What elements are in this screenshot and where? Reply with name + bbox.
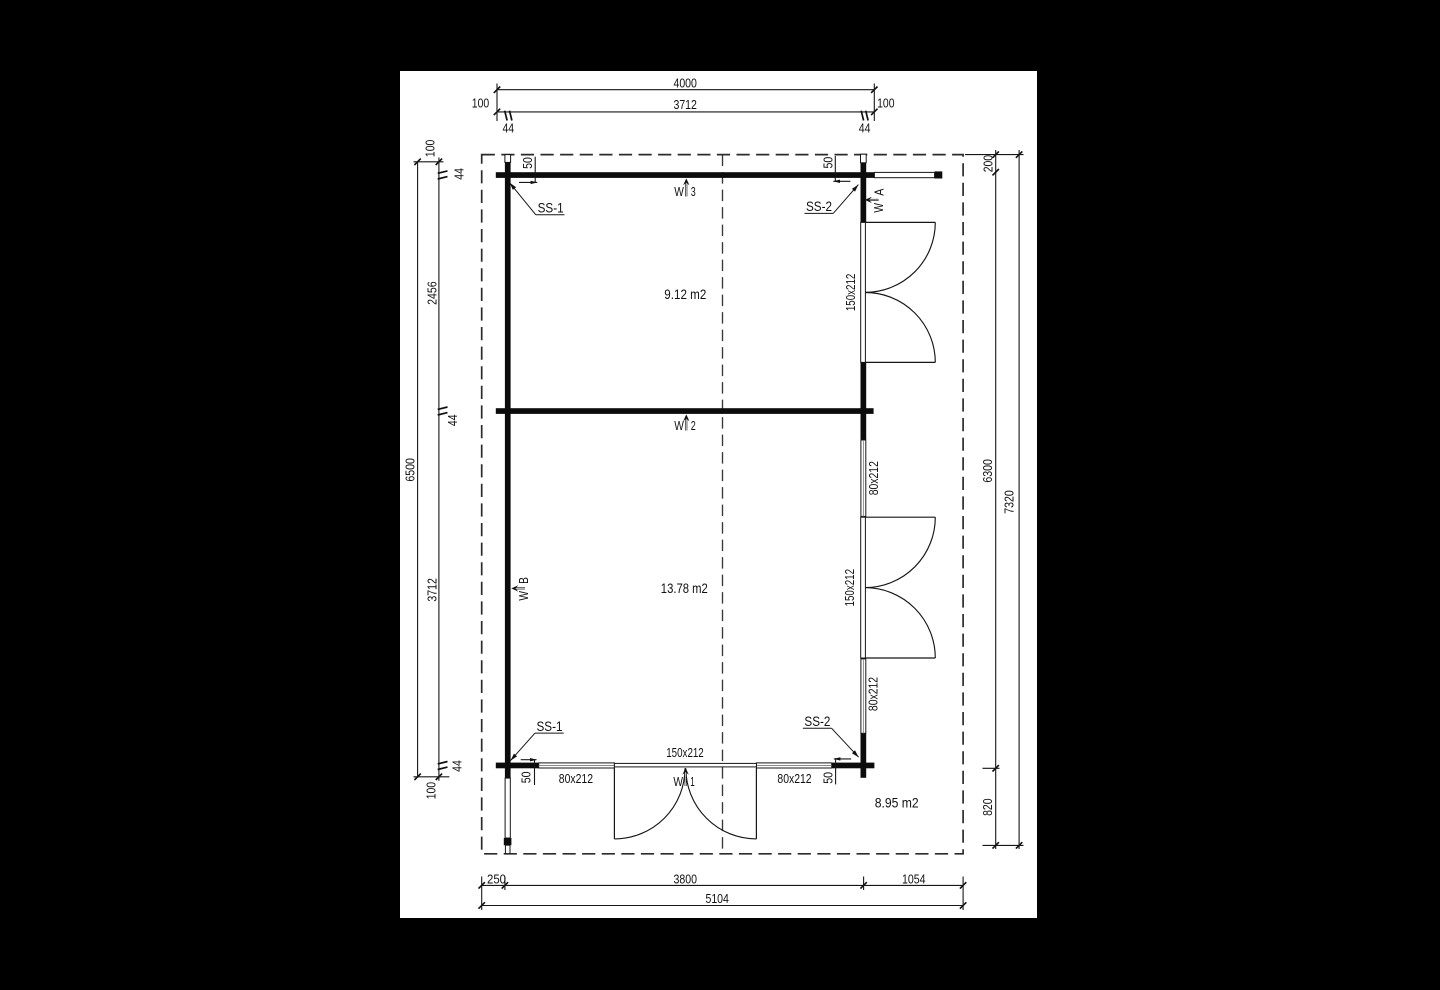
svg-text:50: 50	[820, 772, 835, 784]
svg-text:3712: 3712	[673, 97, 697, 112]
svg-text:W: W	[674, 418, 684, 433]
svg-text:1054: 1054	[902, 872, 926, 887]
svg-text:250: 250	[487, 872, 506, 887]
svg-text:3712: 3712	[424, 578, 439, 602]
svg-text:44: 44	[452, 168, 467, 180]
svg-text:44: 44	[445, 414, 460, 426]
svg-text:3800: 3800	[674, 872, 698, 887]
svg-text:50: 50	[820, 157, 835, 169]
svg-text:50: 50	[520, 157, 535, 169]
svg-text:3: 3	[691, 184, 696, 199]
svg-text:SS-1: SS-1	[537, 718, 563, 734]
svg-text:820: 820	[980, 799, 995, 816]
svg-text:6500: 6500	[403, 458, 418, 482]
svg-text:80x212: 80x212	[865, 677, 880, 711]
svg-text:150x212: 150x212	[666, 745, 704, 760]
svg-text:SS-1: SS-1	[538, 200, 564, 216]
svg-text:100: 100	[424, 782, 439, 799]
svg-text:W: W	[516, 591, 531, 601]
svg-text:44: 44	[450, 760, 465, 772]
svg-text:50: 50	[519, 772, 534, 784]
svg-text:5104: 5104	[705, 891, 729, 906]
svg-text:2: 2	[691, 418, 696, 433]
svg-text:150x212: 150x212	[843, 274, 858, 312]
svg-text:1: 1	[690, 774, 695, 789]
svg-text:100: 100	[472, 96, 489, 111]
svg-text:W: W	[673, 774, 683, 789]
svg-text:150x212: 150x212	[842, 569, 857, 607]
svg-text:100: 100	[423, 140, 438, 157]
svg-text:13.78 m2: 13.78 m2	[661, 580, 708, 596]
svg-text:W: W	[674, 184, 684, 199]
svg-text:4000: 4000	[673, 76, 697, 91]
svg-text:6300: 6300	[980, 459, 995, 483]
svg-text:SS-2: SS-2	[804, 713, 830, 729]
svg-text:9.12 m2: 9.12 m2	[664, 286, 706, 302]
svg-text:80x212: 80x212	[559, 771, 593, 786]
svg-text:7320: 7320	[1002, 490, 1017, 514]
svg-text:A: A	[872, 188, 887, 195]
svg-text:44: 44	[502, 121, 514, 136]
svg-text:200: 200	[980, 155, 995, 172]
svg-text:W: W	[871, 203, 886, 213]
svg-text:44: 44	[859, 121, 871, 136]
svg-text:100: 100	[877, 96, 894, 111]
svg-text:80x212: 80x212	[777, 771, 811, 786]
svg-text:B: B	[516, 577, 531, 584]
svg-text:SS-2: SS-2	[806, 198, 832, 214]
svg-text:80x212: 80x212	[866, 461, 881, 495]
svg-text:2456: 2456	[424, 281, 439, 305]
svg-text:8.95 m2: 8.95 m2	[875, 795, 919, 811]
